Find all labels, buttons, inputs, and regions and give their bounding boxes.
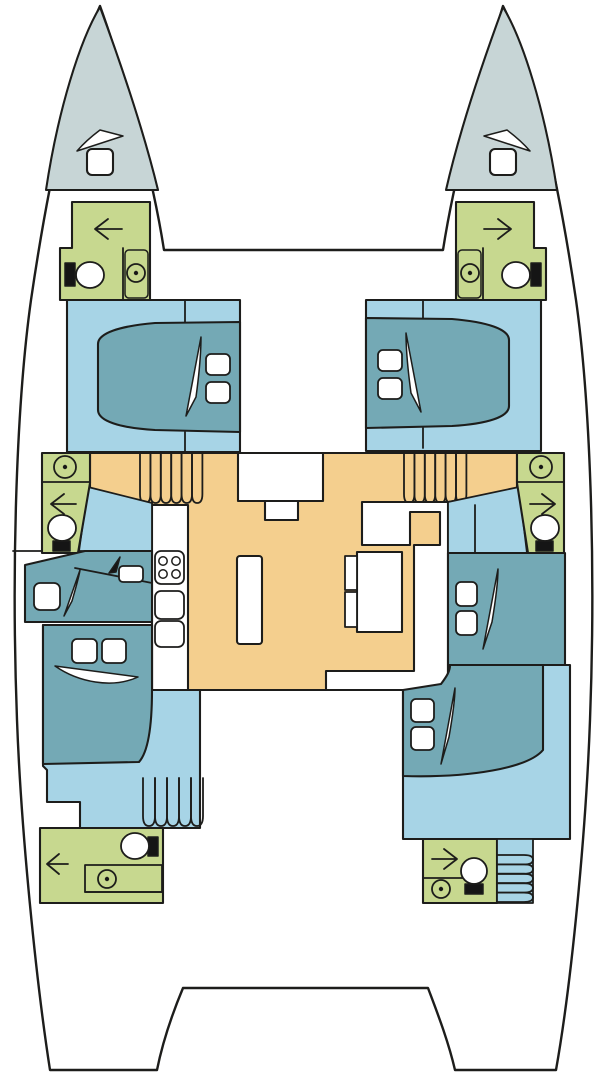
- toilet-tank: [531, 263, 541, 286]
- double-berth: [98, 322, 240, 432]
- galley-sink-icon: [155, 621, 184, 647]
- pillow-icon: [72, 639, 97, 663]
- port-forward-bathroom: [60, 202, 150, 300]
- forward-console: [238, 453, 323, 501]
- dinette-table: [357, 552, 402, 632]
- toilet-tank: [53, 541, 70, 551]
- seat: [345, 592, 357, 627]
- sink-drain: [439, 887, 442, 890]
- toilet-icon: [76, 262, 104, 288]
- seat: [345, 556, 357, 590]
- deck-hatch-icon: [87, 149, 113, 175]
- pillow-icon: [102, 639, 126, 663]
- toilet-icon: [48, 515, 76, 541]
- toilet-icon: [531, 515, 559, 541]
- starboard-bow-locker: [446, 7, 557, 190]
- pillow-icon: [206, 354, 230, 375]
- starboard-aft-stairs: [497, 839, 533, 903]
- salon-island: [237, 556, 262, 644]
- pillow-icon: [411, 699, 434, 722]
- toilet-icon: [121, 833, 149, 859]
- pillow-icon: [378, 350, 402, 371]
- sink-drain: [134, 271, 137, 274]
- deck-hatch-icon: [490, 149, 516, 175]
- starboard-aft-cabin: [403, 665, 570, 839]
- starboard-mid-cabin: [448, 553, 565, 665]
- pillow-icon: [411, 727, 434, 750]
- port-forward-cabin: [67, 300, 240, 452]
- toilet-icon: [461, 858, 487, 884]
- sink-drain: [468, 271, 471, 274]
- toilet-icon: [502, 262, 530, 288]
- galley: [152, 505, 188, 690]
- catamaran-floor-plan: [0, 0, 606, 1080]
- stove-burners-icon: [155, 551, 184, 584]
- port-bow-locker: [46, 7, 158, 190]
- pillow-icon: [456, 611, 477, 635]
- deck-plan-canvas: [0, 0, 606, 1080]
- double-berth: [366, 318, 509, 428]
- sink-drain: [63, 465, 66, 468]
- mast-step: [265, 501, 298, 520]
- shelf: [119, 566, 143, 582]
- port-aft-bathroom: [40, 828, 163, 903]
- pillow-icon: [206, 382, 230, 403]
- double-berth: [448, 553, 565, 665]
- toilet-tank: [536, 541, 553, 551]
- pillow-icon: [456, 582, 477, 606]
- sink-drain: [105, 877, 108, 880]
- starboard-aft-bathroom: [423, 839, 497, 903]
- toilet-tank: [465, 884, 483, 894]
- starboard-forward-cabin: [366, 300, 541, 451]
- port-desk-area: [25, 551, 152, 622]
- toilet-tank: [65, 263, 75, 286]
- galley-sink-icon: [155, 591, 184, 619]
- stool: [34, 583, 60, 610]
- starboard-forward-bathroom: [456, 202, 546, 300]
- sink-drain: [539, 465, 542, 468]
- pillow-icon: [378, 378, 402, 399]
